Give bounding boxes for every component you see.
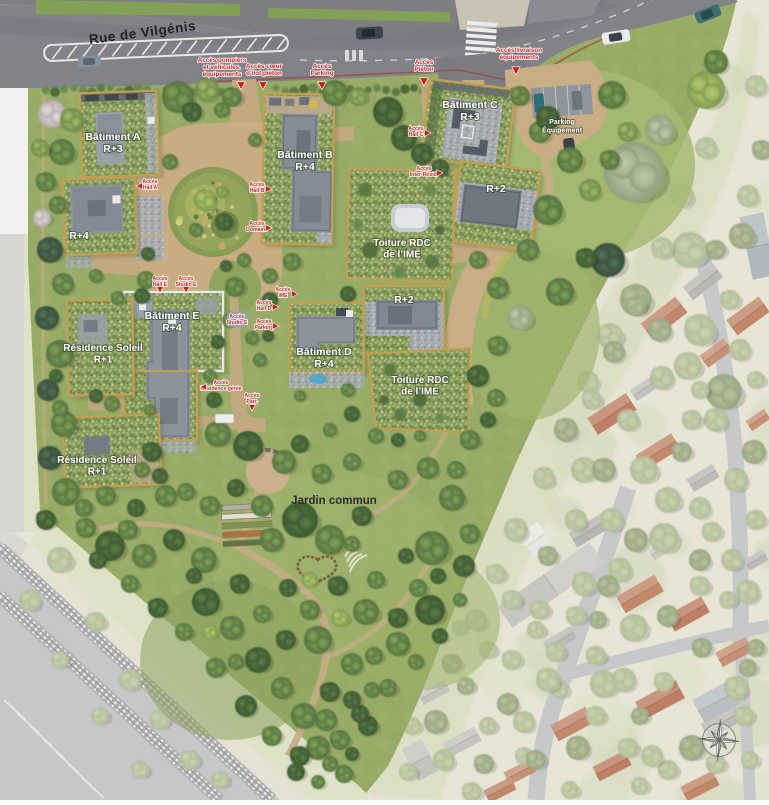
svg-text:AccèsHall D: AccèsHall D <box>256 300 271 312</box>
svg-text:AccèsHall C: AccèsHall C <box>408 126 423 138</box>
svg-text:Accès pompierset véhicules.équ: Accès pompierset véhicules.équipements <box>198 57 247 78</box>
svg-text:R+2: R+2 <box>394 294 414 306</box>
svg-text:R+2: R+2 <box>486 183 506 195</box>
svg-text:AccèsParking: AccèsParking <box>310 63 333 77</box>
svg-text:Jardin commun: Jardin commun <box>291 495 377 507</box>
svg-text:AccèsParking: AccèsParking <box>254 319 273 331</box>
svg-text:AccèsHall E: AccèsHall E <box>152 276 167 288</box>
svg-text:AccèsParc: AccèsParc <box>244 393 259 405</box>
svg-text:Accès cœurd’îlot piéton: Accès cœurd’îlot piéton <box>246 63 283 77</box>
svg-text:R+4: R+4 <box>69 230 89 242</box>
svg-text:AccèsPiéton: AccèsPiéton <box>414 59 433 73</box>
svg-text:Accès livraisonéquipements: Accès livraisonéquipements <box>496 47 542 61</box>
svg-text:AccèsHall B: AccèsHall B <box>249 182 264 194</box>
svg-text:AccèsHall A: AccèsHall A <box>142 179 157 191</box>
